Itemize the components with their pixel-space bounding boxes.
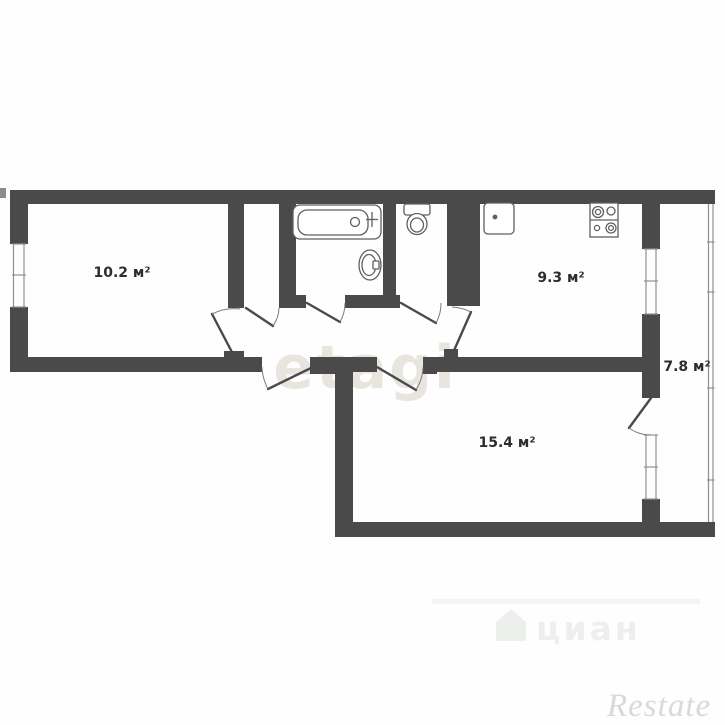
house-icon	[496, 609, 526, 641]
kitchen-sink-icon	[484, 203, 514, 234]
wall-bedroom-right-lower	[642, 499, 660, 523]
wall-wc-bottom-left	[383, 295, 400, 308]
wall-bedroom-top-right	[423, 357, 642, 372]
floor-plan-drawing: etagi	[0, 0, 725, 725]
wall-bath-wc	[383, 204, 396, 308]
watermark-cian-text: циан	[536, 609, 641, 648]
window-bedroom	[644, 435, 658, 499]
wall-bedroom-right-upper	[642, 357, 660, 398]
watermark-restate: Restate	[606, 688, 711, 724]
bathroom-sink-icon	[359, 250, 381, 280]
floor-plan-page: etagi	[0, 0, 725, 725]
door-closet	[246, 308, 279, 326]
wall-bath-bottom-left	[279, 295, 306, 308]
wall-top	[10, 190, 715, 204]
window-kitchen	[644, 249, 658, 314]
room-label-balcony: 7.8 м²	[663, 359, 710, 375]
door-wc	[401, 303, 441, 323]
watermark-band	[432, 599, 700, 604]
wall-hall-bottom	[10, 357, 262, 372]
door-kitchen	[452, 307, 471, 355]
wall-duct-block	[447, 204, 480, 306]
stove-icon	[590, 203, 618, 237]
bathtub-icon	[293, 205, 381, 239]
wall-bottom	[335, 522, 715, 537]
toilet-icon	[404, 204, 430, 235]
door-hinge-nub-bedroom	[423, 357, 437, 374]
door-bathroom	[307, 303, 345, 322]
wall-left-upper	[10, 190, 28, 244]
scan-artifact	[0, 188, 6, 198]
window-livingroom	[12, 244, 26, 307]
watermark-cian: циан	[432, 599, 700, 648]
walls	[0, 188, 715, 537]
room-label-living-room: 10.2 м²	[94, 265, 151, 281]
wall-kitchen-balcony-lower	[642, 314, 660, 360]
door-hinge-nub-kitchen	[444, 349, 458, 358]
door-hinge-nub-entrance	[310, 357, 340, 374]
door-livingroom	[212, 309, 240, 356]
room-label-kitchen: 9.3 м²	[537, 270, 584, 286]
wall-kitchen-balcony-upper	[642, 204, 660, 249]
wall-livingroom-right	[228, 204, 244, 308]
watermark-restate-text: Restate	[606, 688, 711, 724]
door-balcony	[629, 398, 651, 435]
room-label-bedroom: 15.4 м²	[479, 435, 536, 451]
wall-bedroom-left	[335, 357, 353, 537]
